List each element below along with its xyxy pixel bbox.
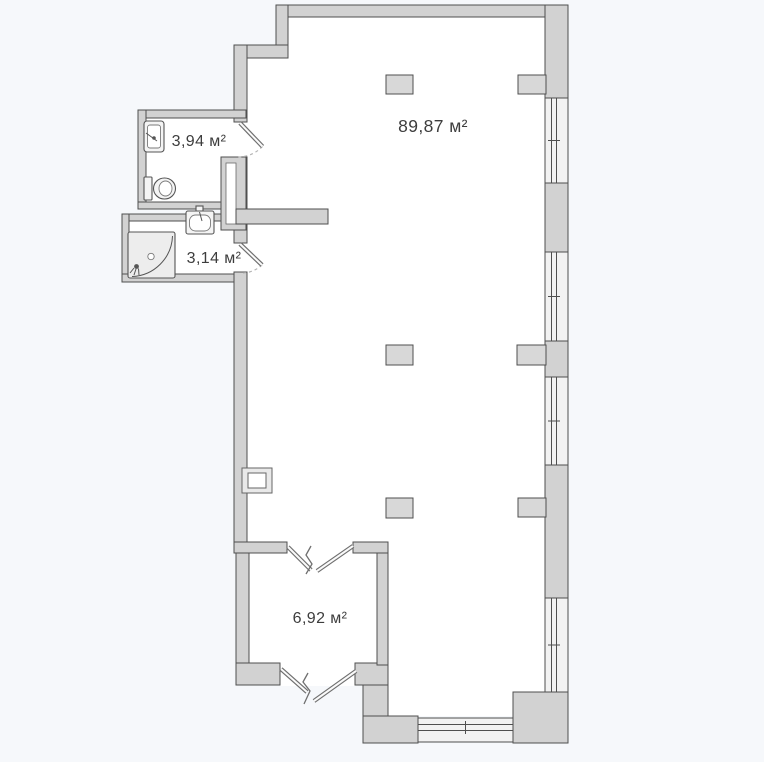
toilet-bowl-inner: [159, 181, 172, 196]
wall-segment: [138, 110, 246, 118]
wall-segment: [545, 183, 568, 252]
toilet-tank: [144, 177, 152, 200]
window-symbol: [545, 98, 568, 183]
washbasin-icon: [186, 206, 214, 234]
shower-room-area-label: 3,14 м²: [187, 250, 242, 267]
wall-partition-stub: [236, 209, 328, 224]
wall-segment: [234, 272, 247, 553]
wall-segment: [363, 716, 418, 743]
window-symbol: [545, 377, 568, 465]
shower-spray-line: [139, 269, 140, 276]
wall-segment: [545, 465, 568, 598]
window-symbol: [545, 252, 568, 341]
shower-head: [134, 264, 139, 269]
pillar: [518, 498, 546, 517]
sink-icon: [144, 121, 164, 152]
window-symbol: [545, 598, 568, 692]
pillar: [386, 75, 413, 94]
pillar: [518, 75, 546, 94]
wall-segment: [545, 341, 568, 377]
duct-shaft-inner: [226, 163, 236, 224]
wall-segment: [236, 553, 249, 665]
wall-segment: [513, 692, 568, 743]
floor-door-opening-entrance: [280, 663, 355, 686]
panel-box: [242, 468, 272, 493]
floor-plan-page: 89,87 м² 3,94 м² 3,14 м² 6,92 м²: [0, 0, 764, 762]
wall-segment: [355, 663, 388, 685]
window-symbol: [418, 718, 513, 742]
wall-segment: [353, 542, 388, 553]
pillar: [386, 498, 413, 518]
bathroom-area-label: 3,94 м²: [172, 133, 227, 150]
floor-entry-hall: [249, 553, 377, 665]
wall-segment: [276, 5, 568, 17]
pillar: [517, 345, 546, 365]
corner-shower-icon: [128, 232, 175, 278]
pillar: [386, 345, 413, 365]
wall-segment: [377, 553, 388, 665]
panel-box-inner: [248, 473, 266, 488]
entry-hall-area-label: 6,92 м²: [293, 610, 348, 627]
shower-drain: [148, 253, 154, 259]
sink-drain: [152, 136, 156, 140]
main-room-area-label: 89,87 м²: [398, 116, 468, 136]
wall-segment: [236, 663, 280, 685]
wall-segment: [234, 542, 287, 553]
toilet-icon: [144, 177, 176, 200]
wall-segment: [545, 5, 568, 98]
floor-plan-canvas: 89,87 м² 3,94 м² 3,14 м² 6,92 м²: [0, 0, 764, 762]
washbasin-basin: [190, 215, 211, 231]
